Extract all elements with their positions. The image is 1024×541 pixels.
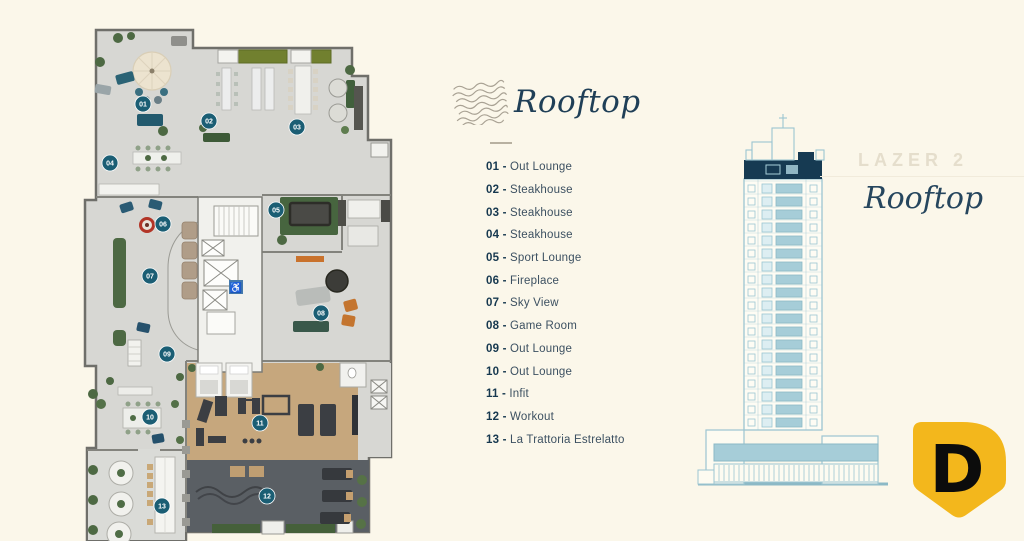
plan-marker-12: 12 [259, 488, 275, 504]
svg-text:♿: ♿ [230, 281, 242, 294]
svg-text:03: 03 [293, 125, 301, 132]
legend-item: 03 - Steakhouse [486, 201, 702, 224]
section-divider [820, 176, 1024, 177]
legend-divider [490, 142, 512, 144]
legend-item: 08 - Game Room [486, 315, 702, 338]
plan-marker-04: 04 [102, 155, 118, 171]
plan-marker-07: 07 [142, 268, 158, 284]
right-panel-title: Rooftop [864, 181, 983, 216]
legend-panel: Rooftop 01 - Out Lounge02 - Steakhouse03… [452, 76, 702, 451]
svg-text:12: 12 [263, 494, 271, 501]
plan-marker-13: 13 [154, 498, 170, 514]
plan-marker-03: 03 [289, 119, 305, 135]
svg-text:05: 05 [272, 208, 280, 215]
plan-marker-08: 08 [313, 305, 329, 321]
floor-plan: ♿ [85, 30, 391, 541]
svg-text:11: 11 [256, 421, 264, 428]
legend-title: Rooftop [514, 84, 641, 120]
plan-marker-01: 01 [135, 96, 151, 112]
legend-item: 01 - Out Lounge [486, 156, 702, 179]
plan-marker-02: 02 [201, 113, 217, 129]
svg-text:08: 08 [317, 311, 325, 318]
legend-item: 11 - Infit [486, 383, 702, 406]
svg-text:02: 02 [205, 119, 213, 126]
legend-item: 09 - Out Lounge [486, 338, 702, 361]
page-background: ♿ [0, 0, 1024, 541]
svg-text:13: 13 [158, 504, 166, 511]
svg-text:10: 10 [146, 415, 154, 422]
section-label: LAZER 2 [858, 150, 968, 171]
svg-text:01: 01 [139, 102, 147, 109]
plan-marker-05: 05 [268, 202, 284, 218]
legend-header: Rooftop [452, 76, 702, 128]
svg-text:09: 09 [163, 352, 171, 359]
developer-logo: D [913, 422, 1006, 518]
plan-marker-11: 11 [252, 415, 268, 431]
legend-list: 01 - Out Lounge02 - Steakhouse03 - Steak… [486, 156, 702, 451]
svg-text:07: 07 [146, 274, 154, 281]
legend-item: 13 - La Trattoria Estrelatto [486, 428, 702, 451]
legend-item: 04 - Steakhouse [486, 224, 702, 247]
legend-item: 05 - Sport Lounge [486, 247, 702, 270]
legend-item: 02 - Steakhouse [486, 179, 702, 202]
waves-icon [452, 79, 510, 125]
legend-item: 12 - Workout [486, 406, 702, 429]
legend-item: 07 - Sky View [486, 292, 702, 315]
umbrella [133, 52, 171, 90]
legend-item: 06 - Fireplace [486, 269, 702, 292]
plan-marker-10: 10 [142, 409, 158, 425]
rooftop-band [744, 160, 822, 179]
plan-marker-09: 09 [159, 346, 175, 362]
plan-marker-06: 06 [155, 216, 171, 232]
logo-letter: D [930, 431, 985, 508]
svg-text:06: 06 [159, 222, 167, 229]
legend-item: 10 - Out Lounge [486, 360, 702, 383]
svg-text:04: 04 [106, 161, 114, 168]
